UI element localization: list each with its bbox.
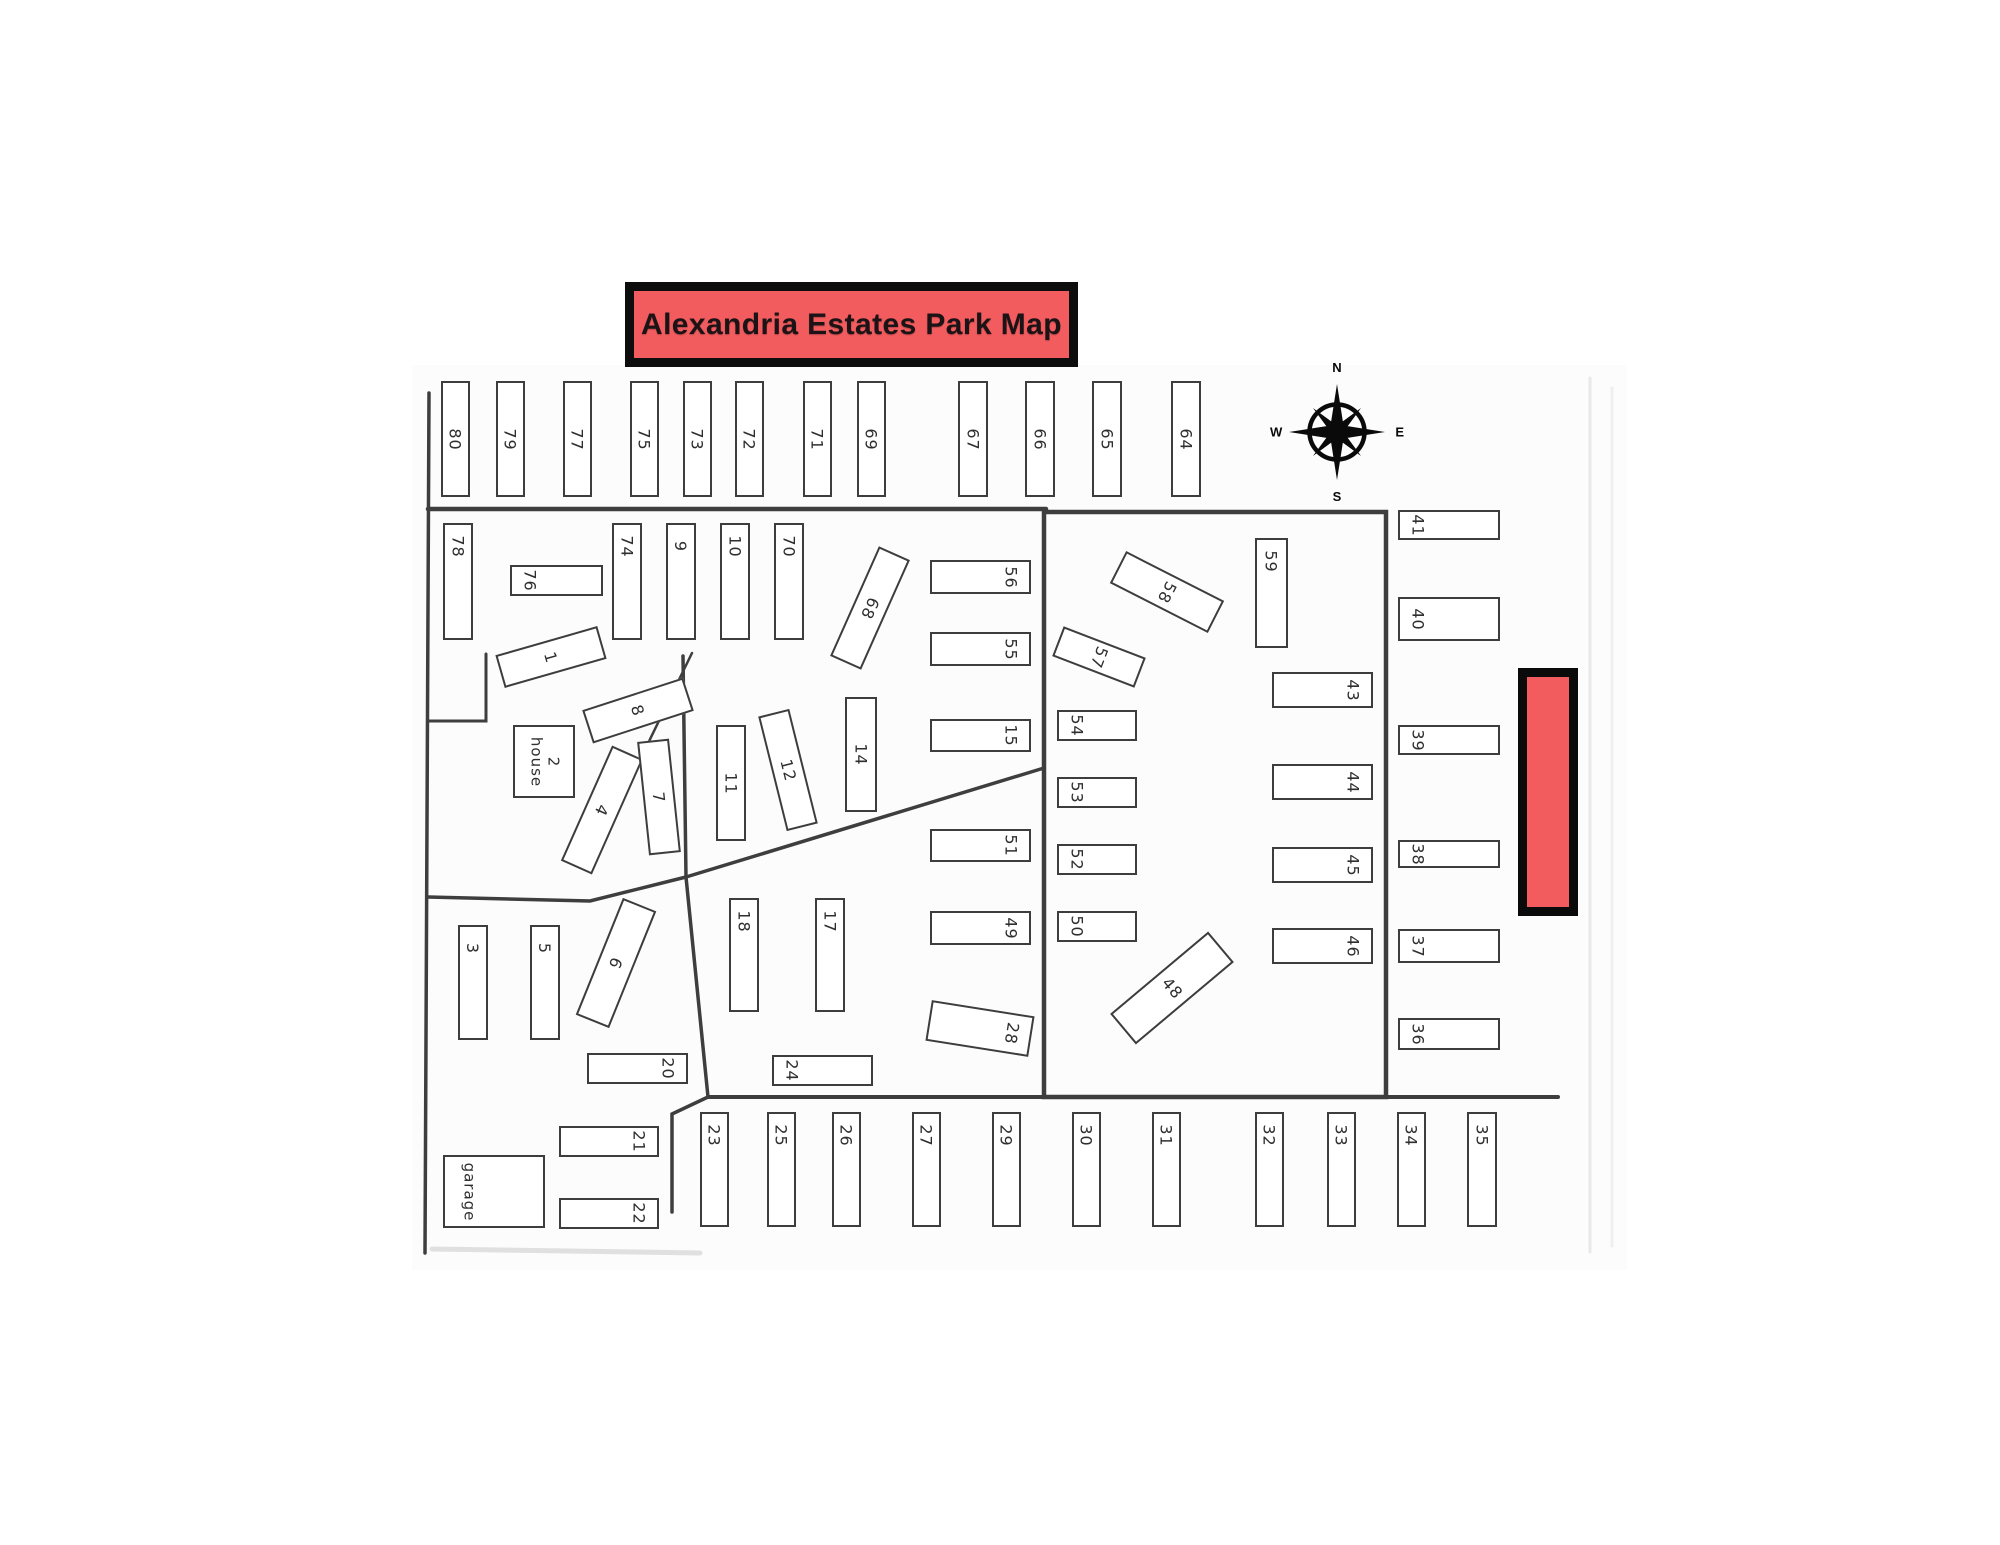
page-title: Alexandria Estates Park Map (641, 308, 1062, 342)
lot-73: 73 (683, 381, 712, 497)
compass-north-label: N (1332, 360, 1341, 375)
compass-east-label: E (1395, 425, 1404, 440)
lot-37: 37 (1398, 929, 1500, 963)
lot-49: 49 (930, 911, 1031, 945)
house-label: 2house (527, 736, 562, 786)
lot-72: 72 (735, 381, 764, 497)
lot-35: 35 (1467, 1112, 1497, 1227)
lot-15: 15 (930, 719, 1031, 752)
lot-46: 46 (1272, 928, 1373, 964)
lot-11: 11 (716, 725, 746, 841)
lot-56: 56 (930, 560, 1031, 594)
lot-29: 29 (992, 1112, 1021, 1227)
lot-9: 9 (666, 523, 696, 640)
compass-rose: N E S W (1270, 360, 1404, 504)
lot-33: 33 (1327, 1112, 1356, 1227)
compass-star-icon (1277, 372, 1397, 492)
lot-54: 54 (1057, 710, 1137, 741)
lot-44: 44 (1272, 764, 1373, 800)
lot-39: 39 (1398, 725, 1500, 755)
garage-building: garage (443, 1155, 545, 1228)
garage-label: garage (460, 1162, 477, 1221)
lot-10: 10 (720, 523, 750, 640)
lot-41: 41 (1398, 510, 1500, 540)
lot-26: 26 (832, 1112, 861, 1227)
lot-45: 45 (1272, 847, 1373, 883)
lot-25: 25 (767, 1112, 796, 1227)
lot-17: 17 (815, 898, 845, 1012)
lot-31: 31 (1152, 1112, 1181, 1227)
lot-43: 43 (1272, 672, 1373, 708)
compass-south-label: S (1333, 489, 1342, 504)
lot-14: 14 (845, 697, 877, 812)
house-building: 2house (513, 725, 575, 798)
lot-3: 3 (458, 925, 488, 1040)
lot-30: 30 (1072, 1112, 1101, 1227)
lot-69: 69 (857, 381, 886, 497)
lot-21: 21 (559, 1126, 659, 1157)
lot-40: 40 (1398, 597, 1500, 641)
lot-18: 18 (729, 898, 759, 1012)
lot-64: 64 (1171, 381, 1201, 497)
lot-67: 67 (958, 381, 988, 497)
lot-51: 51 (930, 829, 1031, 862)
lot-34: 34 (1397, 1112, 1426, 1227)
lot-38: 38 (1398, 840, 1500, 868)
lot-76: 76 (510, 565, 603, 596)
lot-77: 77 (563, 381, 592, 497)
lot-20: 20 (587, 1053, 688, 1084)
lot-55: 55 (930, 632, 1031, 666)
lot-65: 65 (1092, 381, 1122, 497)
lot-78: 78 (443, 523, 473, 640)
lot-36: 36 (1398, 1018, 1500, 1050)
lot-32: 32 (1255, 1112, 1284, 1227)
highlight-marker (1518, 668, 1578, 916)
lot-23: 23 (700, 1112, 729, 1227)
lot-66: 66 (1025, 381, 1055, 497)
lot-59: 59 (1255, 538, 1288, 648)
lot-22: 22 (559, 1198, 659, 1229)
lot-74: 74 (612, 523, 642, 640)
park-map-page: Alexandria Estates Park Map N E S W 80 7… (0, 0, 2000, 1545)
lot-24: 24 (772, 1055, 873, 1086)
lot-5: 5 (530, 925, 560, 1040)
lot-80: 80 (441, 381, 470, 497)
title-banner: Alexandria Estates Park Map (625, 282, 1078, 367)
compass-west-label: W (1270, 425, 1282, 440)
lot-79: 79 (496, 381, 525, 497)
lot-52: 52 (1057, 844, 1137, 875)
lot-50: 50 (1057, 911, 1137, 942)
lot-71: 71 (803, 381, 832, 497)
lot-70: 70 (774, 523, 804, 640)
lot-53: 53 (1057, 777, 1137, 808)
lot-27: 27 (912, 1112, 941, 1227)
lot-75: 75 (630, 381, 659, 497)
